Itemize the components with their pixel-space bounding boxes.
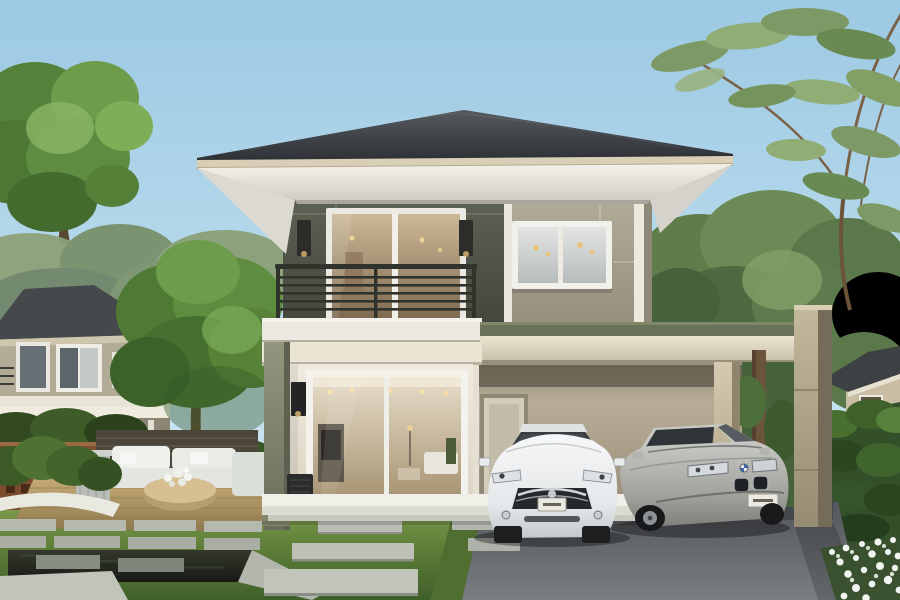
living-room-window bbox=[306, 370, 468, 510]
side-mirror bbox=[760, 448, 770, 455]
wall-sconce-right bbox=[459, 220, 473, 257]
pool-stepping-stone bbox=[36, 555, 100, 569]
balcony-slab bbox=[262, 322, 482, 342]
upper-right-window bbox=[512, 221, 612, 293]
wheel bbox=[582, 526, 610, 543]
fog-light bbox=[502, 511, 510, 519]
kidney-grille bbox=[734, 478, 749, 492]
wheel bbox=[494, 526, 522, 543]
wall-sconce-first-floor bbox=[291, 382, 306, 417]
pool-coping bbox=[0, 571, 128, 600]
carport-corner-pillar bbox=[794, 305, 832, 527]
fog-light bbox=[594, 511, 602, 519]
wheel bbox=[760, 503, 784, 525]
pool-stepping-stone bbox=[118, 558, 184, 572]
side-mirror bbox=[632, 452, 643, 459]
side-mirror bbox=[479, 458, 490, 466]
wall-sconce-left bbox=[297, 220, 311, 257]
side-mirror bbox=[614, 458, 625, 466]
emblem bbox=[548, 490, 556, 498]
architectural-rendering bbox=[0, 0, 900, 600]
scene-canvas bbox=[0, 0, 900, 600]
kidney-grille bbox=[753, 476, 768, 490]
